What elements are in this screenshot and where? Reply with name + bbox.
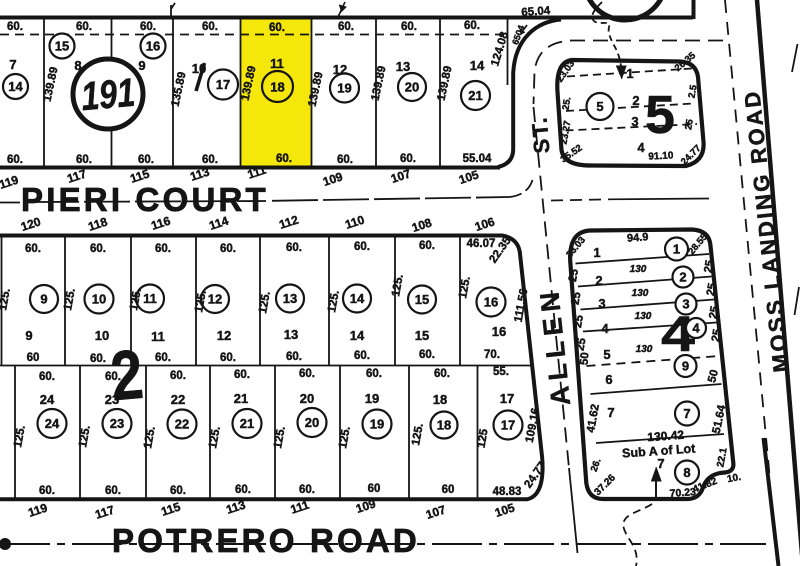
svg-text:60.: 60.: [235, 484, 251, 496]
svg-text:18: 18: [437, 418, 451, 433]
svg-text:21: 21: [240, 416, 254, 431]
svg-text:60.: 60.: [419, 240, 435, 252]
svg-text:60.: 60.: [286, 351, 302, 363]
svg-text:60.: 60.: [337, 154, 353, 166]
svg-text:60.: 60.: [354, 241, 370, 253]
svg-text:60.: 60.: [39, 485, 55, 497]
svg-text:55.: 55.: [493, 366, 509, 378]
svg-text:60: 60: [442, 484, 455, 496]
svg-text:24: 24: [40, 392, 55, 407]
svg-text:POTRERO ROAD: POTRERO ROAD: [112, 522, 420, 559]
svg-text:130: 130: [636, 344, 653, 355]
svg-text:60.: 60.: [234, 369, 250, 381]
svg-text:10: 10: [92, 292, 106, 307]
svg-text:25.: 25.: [560, 96, 573, 111]
svg-text:1: 1: [673, 242, 680, 257]
svg-text:15: 15: [415, 292, 429, 307]
svg-text:15: 15: [415, 328, 429, 343]
svg-text:14: 14: [350, 291, 365, 306]
svg-text:9: 9: [682, 359, 689, 374]
svg-text:8: 8: [683, 465, 690, 480]
svg-text:18: 18: [270, 80, 284, 95]
svg-text:7: 7: [9, 57, 16, 72]
svg-text:46.07: 46.07: [467, 238, 496, 250]
svg-text:12: 12: [217, 328, 231, 343]
svg-text:60: 60: [27, 352, 40, 364]
svg-text:14: 14: [350, 328, 365, 343]
svg-text:21: 21: [468, 88, 482, 103]
svg-text:48.83: 48.83: [493, 486, 522, 498]
svg-text:12: 12: [208, 292, 222, 307]
svg-text:11: 11: [270, 56, 284, 71]
svg-text:23: 23: [110, 416, 124, 431]
svg-text:60.: 60.: [155, 243, 171, 255]
svg-text:60.: 60.: [105, 485, 121, 497]
svg-text:14: 14: [8, 79, 23, 94]
svg-text:4: 4: [692, 321, 700, 336]
svg-text:16: 16: [484, 295, 498, 310]
svg-text:ST.: ST.: [526, 115, 554, 155]
svg-text:60.: 60.: [90, 353, 106, 365]
svg-text:PIERI COURT: PIERI COURT: [21, 181, 269, 218]
svg-text:20: 20: [405, 80, 419, 95]
svg-text:4: 4: [601, 321, 609, 336]
svg-text:7: 7: [683, 406, 690, 421]
svg-text:3: 3: [598, 296, 605, 311]
svg-text:60.: 60.: [140, 21, 156, 33]
svg-text:60.: 60.: [170, 485, 186, 497]
svg-text:60.: 60.: [401, 21, 417, 33]
svg-text:60: 60: [368, 483, 381, 495]
svg-text:7: 7: [657, 456, 664, 471]
svg-text:60.: 60.: [7, 154, 23, 166]
svg-text:15: 15: [55, 39, 69, 54]
svg-text:21: 21: [234, 391, 248, 406]
svg-text:91.10: 91.10: [648, 150, 674, 162]
svg-text:9: 9: [40, 292, 47, 307]
svg-text:23: 23: [105, 392, 119, 407]
svg-text:11: 11: [151, 329, 165, 344]
svg-text:19: 19: [365, 391, 379, 406]
svg-text:60.: 60.: [220, 243, 236, 255]
svg-text:60.: 60.: [354, 350, 370, 362]
svg-text:13: 13: [396, 59, 410, 74]
svg-text:60.: 60.: [299, 368, 315, 380]
svg-text:55.04: 55.04: [463, 153, 492, 165]
svg-text:60.: 60.: [76, 154, 92, 166]
svg-text:5: 5: [596, 99, 603, 114]
svg-text:60.: 60.: [105, 371, 121, 383]
svg-text:22: 22: [175, 417, 189, 432]
svg-text:60.: 60.: [299, 484, 315, 496]
svg-text:60.: 60.: [276, 153, 292, 165]
svg-text:60.: 60.: [170, 370, 186, 382]
svg-text:3: 3: [631, 114, 638, 129]
svg-text:18: 18: [433, 392, 447, 407]
svg-text:130: 130: [632, 288, 649, 299]
svg-text:60.: 60.: [25, 243, 41, 255]
svg-text:60.: 60.: [220, 352, 236, 364]
svg-text:13: 13: [284, 327, 298, 342]
svg-text:17: 17: [501, 418, 515, 433]
svg-text:60.: 60.: [155, 352, 171, 364]
svg-text:6: 6: [605, 372, 612, 387]
svg-text:22: 22: [171, 392, 185, 407]
svg-text:50: 50: [578, 352, 591, 366]
svg-text:60.: 60.: [76, 21, 92, 33]
svg-text:2: 2: [632, 93, 639, 108]
svg-text:24: 24: [45, 416, 60, 431]
svg-text:13: 13: [283, 291, 297, 306]
svg-text:2: 2: [595, 273, 602, 288]
svg-text:60.: 60.: [269, 22, 285, 34]
svg-text:60.: 60.: [90, 243, 106, 255]
svg-text:7: 7: [607, 405, 614, 420]
svg-text:60.: 60.: [338, 21, 354, 33]
svg-text:20: 20: [305, 415, 319, 430]
svg-text:5: 5: [645, 85, 675, 145]
svg-text:60.: 60.: [286, 242, 302, 254]
svg-text:1: 1: [626, 66, 633, 81]
svg-text:60.: 60.: [202, 21, 218, 33]
svg-text:14: 14: [470, 58, 485, 73]
svg-text:19: 19: [370, 417, 384, 432]
svg-text:60.: 60.: [419, 349, 435, 361]
svg-text:16: 16: [146, 39, 160, 54]
svg-text:60.: 60.: [464, 20, 480, 32]
svg-text:65.04: 65.04: [521, 5, 551, 19]
svg-text:1: 1: [593, 245, 600, 260]
svg-text:19: 19: [337, 81, 351, 96]
svg-text:60.: 60.: [366, 368, 382, 380]
svg-text:130: 130: [630, 264, 647, 275]
svg-text:17: 17: [500, 391, 514, 406]
svg-text:5: 5: [603, 347, 610, 362]
svg-text:60.: 60.: [202, 154, 218, 166]
svg-text:9: 9: [25, 328, 32, 343]
svg-text:16: 16: [492, 324, 506, 339]
svg-text:2: 2: [679, 270, 686, 285]
svg-text:60.: 60.: [400, 153, 416, 165]
svg-text:191: 191: [79, 71, 137, 120]
svg-text:94.9: 94.9: [627, 231, 649, 244]
svg-text:70.: 70.: [484, 349, 500, 361]
svg-text:60.: 60.: [7, 21, 23, 33]
svg-text:17: 17: [216, 77, 230, 92]
svg-text:11: 11: [143, 291, 157, 306]
svg-text:60.: 60.: [39, 371, 55, 383]
svg-text:130: 130: [635, 311, 652, 322]
svg-text:20: 20: [300, 391, 314, 406]
svg-text:60.: 60.: [138, 154, 154, 166]
svg-text:9: 9: [138, 58, 145, 73]
svg-text:60.: 60.: [434, 368, 450, 380]
